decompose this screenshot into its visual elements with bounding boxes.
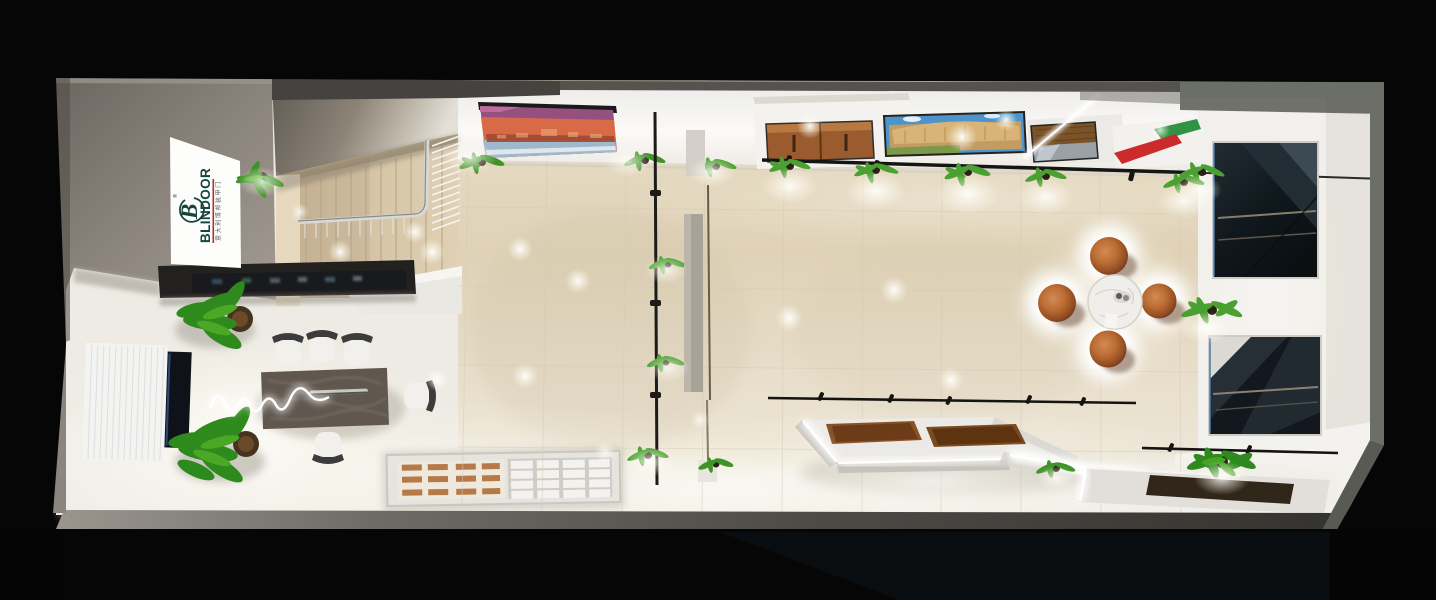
svg-text:意大利博邦装甲门: 意大利博邦装甲门 xyxy=(215,180,223,241)
svg-text:BLINDOOR: BLINDOOR xyxy=(198,168,213,243)
svg-text:®: ® xyxy=(172,194,179,198)
